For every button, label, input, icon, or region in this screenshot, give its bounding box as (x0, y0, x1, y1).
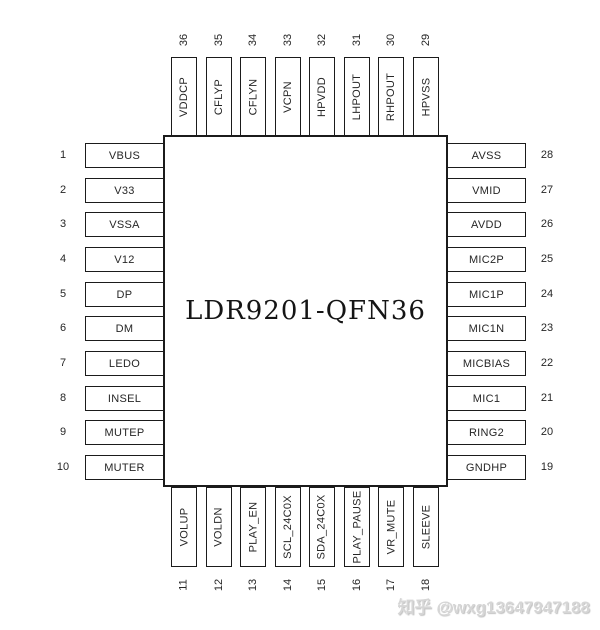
pin-box-27: VMID (447, 178, 526, 203)
pin-box-23: MIC1N (447, 316, 526, 341)
pin-label-13: PLAY_EN (247, 502, 259, 553)
pin-box-16: PLAY_PAUSE (344, 487, 370, 567)
pin-number-28: 28 (530, 143, 564, 168)
pin-box-36: VDDCP (171, 57, 197, 136)
qfn36-pinout-diagram: LDR9201-QFN36 1 VBUS 2 V33 3 VSSA 4 V12 … (0, 0, 600, 630)
pin-label-36: VDDCP (178, 76, 190, 116)
pin-label-21: MIC1 (473, 393, 500, 405)
pin-number-32: 32 (309, 26, 335, 54)
pin-number-7: 7 (46, 351, 80, 376)
pin-number-24: 24 (530, 282, 564, 307)
pin-box-6: DM (85, 316, 164, 341)
pin-number-31: 31 (344, 26, 370, 54)
pin-label-1: VBUS (109, 150, 140, 162)
pin-box-7: LEDO (85, 351, 164, 376)
pin-box-11: VOLUP (171, 487, 197, 567)
pin-number-26: 26 (530, 212, 564, 237)
pin-label-20: RING2 (469, 427, 504, 439)
pin-number-35: 35 (206, 26, 232, 54)
pin-label-25: MIC2P (469, 254, 504, 266)
pin-number-2: 2 (46, 178, 80, 203)
pin-number-12: 12 (206, 571, 232, 599)
pin-label-35: CFLYP (213, 78, 225, 114)
pin-label-31: LHPOUT (351, 73, 363, 119)
pin-box-8: INSEL (85, 386, 164, 411)
pin-label-7: LEDO (109, 358, 140, 370)
pin-label-18: SLEEVE (420, 505, 432, 550)
pin-number-33: 33 (275, 26, 301, 54)
pin-label-15: SDA_24C0X (316, 494, 328, 559)
pin-label-32: HPVDD (316, 76, 328, 116)
pin-number-1: 1 (46, 143, 80, 168)
pin-number-15: 15 (309, 571, 335, 599)
pin-number-21: 21 (530, 386, 564, 411)
pin-label-2: V33 (114, 185, 134, 197)
pin-box-28: AVSS (447, 143, 526, 168)
pin-label-12: VOLDN (213, 507, 225, 546)
pin-label-10: MUTER (104, 462, 145, 474)
pin-label-26: AVDD (471, 219, 502, 231)
pin-label-29: HPVSS (420, 77, 432, 116)
pin-label-4: V12 (114, 254, 134, 266)
pin-box-34: CFLYN (240, 57, 266, 136)
pin-number-9: 9 (46, 420, 80, 445)
pin-box-3: VSSA (85, 212, 164, 237)
pin-number-10: 10 (46, 455, 80, 480)
pin-number-16: 16 (344, 571, 370, 599)
pin-label-19: GNDHP (466, 462, 507, 474)
pin-number-5: 5 (46, 282, 80, 307)
pin-number-4: 4 (46, 247, 80, 272)
pin-box-17: VR_MUTE (378, 487, 404, 567)
pin-number-3: 3 (46, 212, 80, 237)
pin-number-8: 8 (46, 386, 80, 411)
pin-box-12: VOLDN (206, 487, 232, 567)
pin-box-14: SCL_24C0X (275, 487, 301, 567)
pin-label-14: SCL_24C0X (282, 495, 294, 559)
pin-box-5: DP (85, 282, 164, 307)
pin-box-20: RING2 (447, 420, 526, 445)
pin-box-18: SLEEVE (413, 487, 439, 567)
pin-label-34: CFLYN (247, 78, 259, 115)
pin-label-28: AVSS (472, 150, 502, 162)
chip-part-number: LDR9201-QFN36 (185, 296, 426, 326)
pin-label-5: DP (117, 289, 133, 301)
pin-label-24: MIC1P (469, 289, 504, 301)
pin-number-22: 22 (530, 351, 564, 376)
chip-body: LDR9201-QFN36 (163, 135, 448, 487)
pin-box-35: CFLYP (206, 57, 232, 136)
pin-label-22: MICBIAS (463, 358, 510, 370)
pin-label-8: INSEL (108, 393, 141, 405)
pin-number-30: 30 (378, 26, 404, 54)
pin-box-2: V33 (85, 178, 164, 203)
pin-box-30: RHPOUT (378, 57, 404, 136)
pin-box-24: MIC1P (447, 282, 526, 307)
pin-box-32: HPVDD (309, 57, 335, 136)
pin-label-27: VMID (472, 185, 501, 197)
pin-box-4: V12 (85, 247, 164, 272)
pin-box-21: MIC1 (447, 386, 526, 411)
pin-number-36: 36 (171, 26, 197, 54)
pin-label-6: DM (116, 323, 134, 335)
pin-number-29: 29 (413, 26, 439, 54)
pin-number-27: 27 (530, 178, 564, 203)
pin-number-19: 19 (530, 455, 564, 480)
pin-label-33: VCPN (282, 81, 294, 113)
pin-number-20: 20 (530, 420, 564, 445)
pin-label-11: VOLUP (178, 508, 190, 547)
pin-label-17: VR_MUTE (385, 500, 397, 555)
pin-number-13: 13 (240, 571, 266, 599)
pin-number-23: 23 (530, 316, 564, 341)
pin-label-16: PLAY_PAUSE (351, 491, 363, 564)
pin-label-23: MIC1N (469, 323, 505, 335)
pin-box-9: MUTEP (85, 420, 164, 445)
pin-number-34: 34 (240, 26, 266, 54)
pin-box-25: MIC2P (447, 247, 526, 272)
pin-number-14: 14 (275, 571, 301, 599)
pin-box-29: HPVSS (413, 57, 439, 136)
pin-number-6: 6 (46, 316, 80, 341)
pin-box-33: VCPN (275, 57, 301, 136)
pin-label-9: MUTEP (105, 427, 145, 439)
pin-box-13: PLAY_EN (240, 487, 266, 567)
pin-number-25: 25 (530, 247, 564, 272)
watermark-zhihu: 知乎 @wxg13647947188 (398, 593, 590, 618)
pin-number-11: 11 (171, 571, 197, 599)
pin-box-1: VBUS (85, 143, 164, 168)
pin-label-30: RHPOUT (385, 72, 397, 120)
pin-box-31: LHPOUT (344, 57, 370, 136)
pin-label-3: VSSA (109, 219, 140, 231)
pin-box-19: GNDHP (447, 455, 526, 480)
pin-box-26: AVDD (447, 212, 526, 237)
pin-box-22: MICBIAS (447, 351, 526, 376)
pin-box-15: SDA_24C0X (309, 487, 335, 567)
pin-box-10: MUTER (85, 455, 164, 480)
